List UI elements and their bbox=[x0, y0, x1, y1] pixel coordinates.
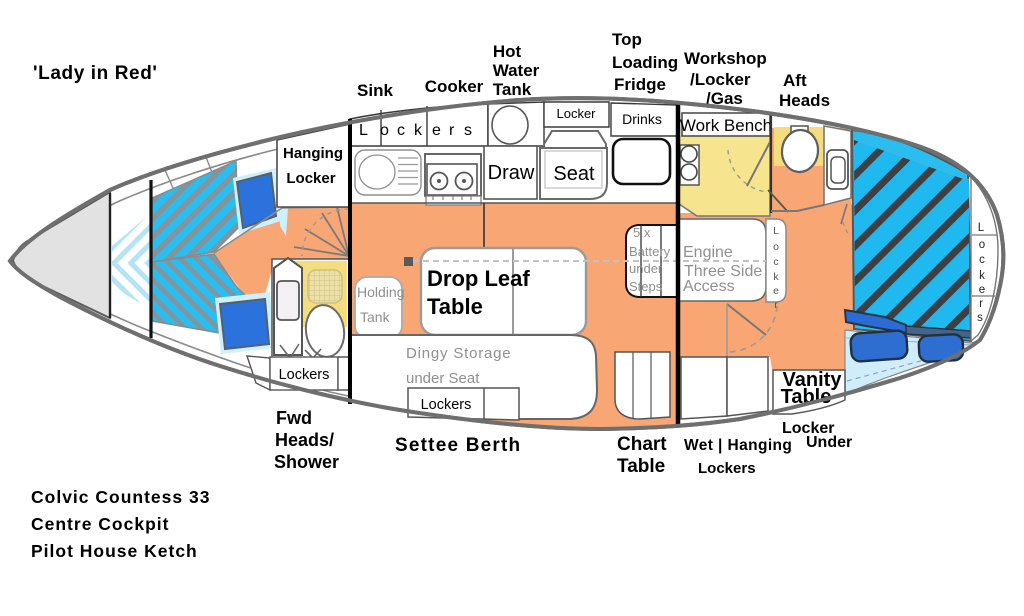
svg-text:c: c bbox=[773, 256, 778, 268]
svg-text:o: o bbox=[380, 122, 389, 139]
svg-text:k: k bbox=[773, 271, 779, 283]
svg-text:k: k bbox=[414, 122, 423, 139]
svg-text:k: k bbox=[979, 270, 985, 282]
svg-text:Tank: Tank bbox=[493, 80, 532, 99]
svg-text:L: L bbox=[359, 122, 368, 139]
svg-text:under: under bbox=[629, 261, 663, 276]
svg-text:Lockers: Lockers bbox=[421, 397, 472, 413]
svg-text:Hanging: Hanging bbox=[283, 145, 343, 162]
svg-text:Hot: Hot bbox=[493, 42, 522, 61]
svg-text:Draw: Draw bbox=[488, 162, 535, 184]
svg-text:Loading: Loading bbox=[612, 53, 678, 72]
svg-text:e: e bbox=[432, 122, 441, 139]
svg-text:e: e bbox=[773, 285, 779, 297]
svg-text:Lockers: Lockers bbox=[698, 460, 756, 477]
svg-text:Work Bench: Work Bench bbox=[680, 116, 772, 135]
svg-text:Shower: Shower bbox=[274, 452, 339, 472]
svg-text:Aft: Aft bbox=[783, 71, 807, 90]
svg-text:Pilot House Ketch: Pilot House Ketch bbox=[31, 541, 198, 561]
svg-text:5 x: 5 x bbox=[633, 225, 651, 240]
svg-text:Locker: Locker bbox=[286, 170, 335, 187]
svg-text:c: c bbox=[397, 122, 405, 139]
svg-text:Colvic Countess 33: Colvic Countess 33 bbox=[31, 487, 210, 507]
svg-text:Heads: Heads bbox=[779, 91, 830, 110]
svg-text:L: L bbox=[773, 225, 779, 237]
svg-text:Top: Top bbox=[612, 30, 642, 49]
svg-text:Chart: Chart bbox=[617, 434, 667, 455]
svg-text:Under: Under bbox=[806, 434, 852, 451]
svg-text:Table: Table bbox=[427, 294, 483, 319]
svg-text:Locker: Locker bbox=[556, 106, 596, 121]
svg-text:s: s bbox=[464, 122, 472, 139]
svg-text:Drinks: Drinks bbox=[622, 111, 662, 127]
svg-text:s: s bbox=[977, 312, 983, 324]
svg-text:Seat: Seat bbox=[553, 163, 595, 185]
svg-text:c: c bbox=[979, 254, 985, 266]
svg-text:Water: Water bbox=[493, 61, 540, 80]
svg-text:Tank: Tank bbox=[360, 309, 391, 325]
svg-text:e: e bbox=[979, 284, 985, 296]
svg-text:Settee Berth: Settee Berth bbox=[395, 435, 521, 456]
svg-text:Heads/: Heads/ bbox=[275, 430, 334, 450]
svg-text:Holding: Holding bbox=[357, 284, 404, 300]
svg-text:r: r bbox=[449, 122, 455, 139]
svg-text:/Locker: /Locker bbox=[690, 70, 751, 89]
svg-text:o: o bbox=[773, 241, 779, 253]
svg-text:'Lady in Red': 'Lady in Red' bbox=[33, 63, 158, 84]
svg-text:Wet | Hanging: Wet | Hanging bbox=[684, 437, 792, 454]
svg-text:Sink: Sink bbox=[357, 81, 393, 100]
svg-text:Centre Cockpit: Centre Cockpit bbox=[31, 514, 169, 534]
svg-text:under Seat: under Seat bbox=[406, 370, 480, 387]
svg-text:Cooker: Cooker bbox=[425, 77, 484, 96]
svg-text:L: L bbox=[978, 222, 985, 234]
svg-text:Fridge: Fridge bbox=[614, 75, 666, 94]
svg-text:Drop Leaf: Drop Leaf bbox=[427, 266, 530, 291]
svg-text:Battery: Battery bbox=[629, 244, 671, 259]
svg-text:o: o bbox=[979, 239, 985, 251]
svg-text:Dingy Storage: Dingy Storage bbox=[406, 345, 511, 362]
svg-text:Workshop: Workshop bbox=[684, 49, 767, 68]
svg-text:Table: Table bbox=[617, 456, 665, 477]
svg-text:r: r bbox=[979, 298, 983, 310]
svg-text:Access: Access bbox=[683, 278, 735, 295]
svg-text:Engine: Engine bbox=[683, 244, 733, 261]
svg-text:Fwd: Fwd bbox=[276, 408, 312, 428]
svg-text:Lockers: Lockers bbox=[279, 367, 330, 383]
svg-text:Steps: Steps bbox=[629, 279, 663, 294]
